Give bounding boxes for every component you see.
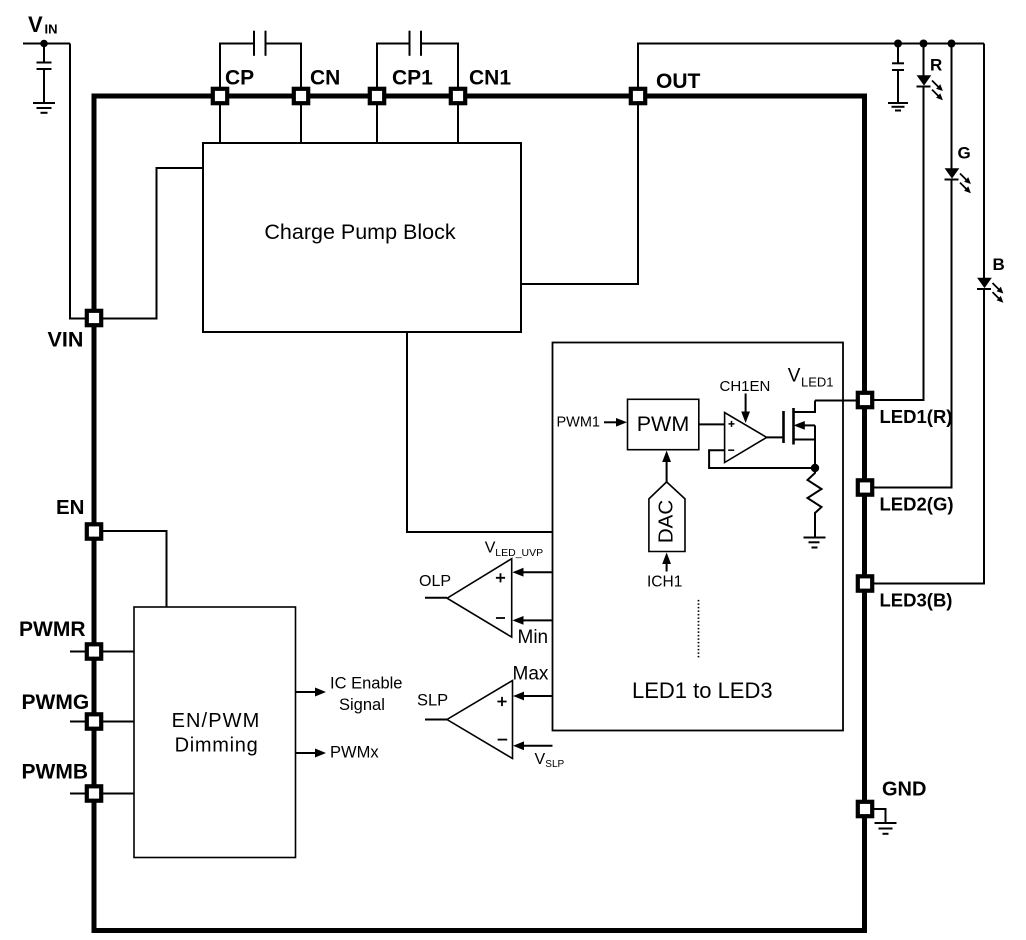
svg-text:PWM: PWM xyxy=(637,412,690,436)
svg-text:EN: EN xyxy=(56,496,84,519)
svg-text:VIN: VIN xyxy=(48,328,84,352)
svg-text:OLP: OLP xyxy=(419,573,451,590)
svg-text:G: G xyxy=(958,144,971,163)
svg-text:LED2(G): LED2(G) xyxy=(880,494,954,515)
svg-text:IN: IN xyxy=(45,22,58,37)
svg-text:LED3(B): LED3(B) xyxy=(880,590,953,611)
svg-text:CN1: CN1 xyxy=(469,67,511,90)
svg-text:ICH1: ICH1 xyxy=(647,574,682,591)
svg-text:PWMR: PWMR xyxy=(19,618,86,641)
svg-text:Min: Min xyxy=(518,627,549,648)
svg-text:V: V xyxy=(788,365,801,386)
svg-text:Signal: Signal xyxy=(339,696,385,714)
svg-text:PWMB: PWMB xyxy=(22,761,89,784)
svg-text:CP: CP xyxy=(225,67,254,90)
svg-text:PWMx: PWMx xyxy=(330,744,379,762)
svg-text:LED1(R): LED1(R) xyxy=(880,406,953,427)
svg-text:LED_UVP: LED_UVP xyxy=(495,547,543,559)
svg-text:LED1: LED1 xyxy=(801,375,834,390)
svg-text:SLP: SLP xyxy=(417,692,448,710)
svg-text:R: R xyxy=(930,56,942,75)
svg-text:IC Enable: IC Enable xyxy=(330,675,402,693)
svg-text:V: V xyxy=(535,751,546,768)
svg-text:V: V xyxy=(28,12,43,37)
svg-text:EN/PWM: EN/PWM xyxy=(172,710,261,732)
svg-text:LED1 to LED3: LED1 to LED3 xyxy=(632,678,773,703)
svg-text:DAC: DAC xyxy=(654,500,677,543)
svg-text:V: V xyxy=(485,540,496,557)
svg-text:Dimming: Dimming xyxy=(175,735,259,757)
svg-text:B: B xyxy=(993,255,1005,274)
svg-text:SLP: SLP xyxy=(545,759,564,770)
svg-text:GND: GND xyxy=(882,779,926,801)
svg-text:OUT: OUT xyxy=(656,70,701,93)
svg-text:CN: CN xyxy=(310,67,340,90)
svg-text:PWMG: PWMG xyxy=(22,691,90,714)
svg-text:CH1EN: CH1EN xyxy=(720,378,771,395)
svg-text:Max: Max xyxy=(513,664,549,685)
svg-text:Charge Pump Block: Charge Pump Block xyxy=(264,220,455,244)
svg-text:PWM1: PWM1 xyxy=(557,415,601,431)
svg-text:CP1: CP1 xyxy=(392,67,433,90)
